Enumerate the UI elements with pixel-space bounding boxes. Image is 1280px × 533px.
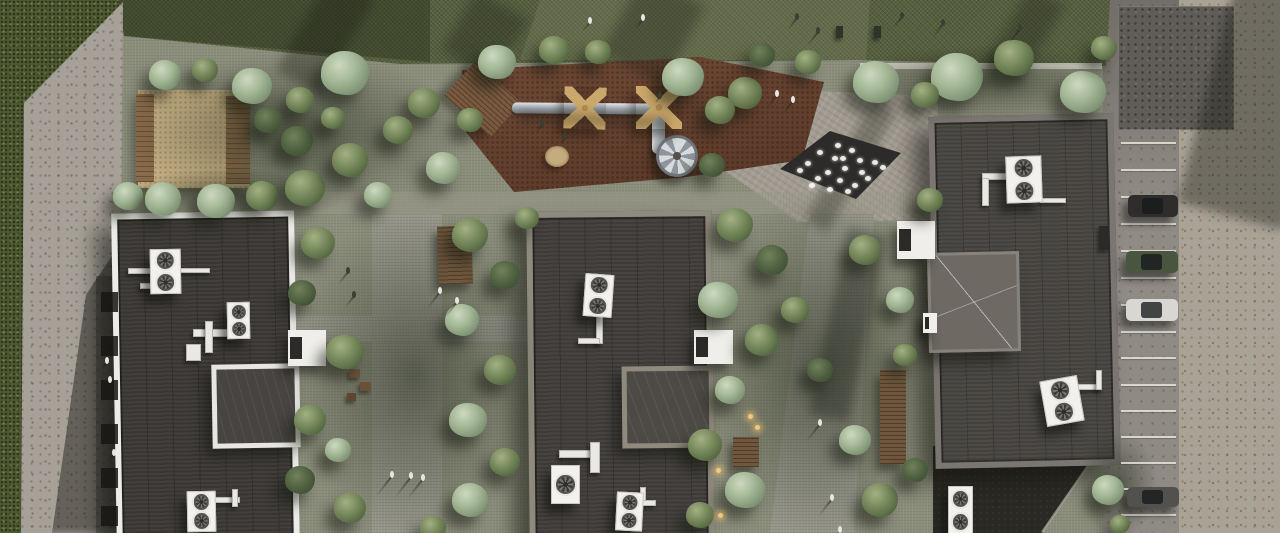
tree [1110, 515, 1130, 533]
tree [383, 116, 413, 144]
spiral-slide [656, 135, 698, 177]
person [112, 449, 116, 456]
tree [715, 376, 745, 404]
parking-stall-line [1121, 142, 1176, 144]
person [352, 291, 356, 298]
tree [585, 40, 611, 64]
hvac-unit [583, 273, 615, 318]
hvac-fan-icon [1048, 378, 1073, 403]
rooftop-pipe [186, 344, 201, 361]
person [775, 90, 779, 97]
tree [285, 466, 315, 494]
rooftop-pipe [1040, 198, 1066, 203]
garden-lamp-glow [716, 468, 721, 473]
tree [893, 344, 917, 366]
car-windows [1142, 490, 1164, 505]
tree [745, 324, 779, 355]
hvac-fan-icon [1051, 399, 1076, 424]
hvac-fan-icon [229, 320, 247, 338]
tree [862, 483, 898, 516]
parked-car [1126, 299, 1178, 321]
tree [853, 61, 899, 103]
tree [288, 280, 316, 306]
person [108, 376, 112, 383]
hvac-fan-icon [951, 512, 971, 532]
person [540, 120, 544, 127]
tree [145, 182, 181, 215]
tree [113, 182, 143, 210]
hvac-unit [615, 491, 644, 531]
person [641, 14, 645, 21]
hvac-fan-icon [1013, 179, 1036, 202]
hvac-unit [551, 465, 580, 504]
tree [1092, 475, 1124, 504]
person [838, 526, 842, 533]
fountain-jet [840, 156, 846, 161]
tree [917, 188, 943, 212]
person [791, 96, 795, 103]
parking-stall-line [1121, 410, 1176, 412]
fountain-jet [849, 148, 855, 153]
wood-deck [880, 370, 906, 464]
entrance-canopy-opening [925, 317, 929, 329]
parking-stall-line [1121, 462, 1176, 464]
fountain-jet [825, 170, 831, 175]
tree [902, 458, 928, 482]
entrance-canopy-opening [290, 337, 302, 359]
tree [281, 126, 313, 155]
tree [408, 88, 440, 117]
tree [1091, 36, 1117, 60]
hvac-fan-icon [587, 295, 609, 317]
tree [325, 438, 351, 462]
tree [452, 218, 488, 251]
tree [749, 43, 775, 67]
site-prop [874, 26, 881, 38]
tree [286, 87, 314, 113]
entrance-canopy-opening [696, 337, 708, 357]
tree [426, 152, 460, 183]
rooftop-pipe [178, 268, 210, 273]
tree [698, 282, 738, 319]
tree [484, 355, 516, 384]
fountain-jet [865, 176, 871, 181]
fountain-jet [832, 156, 838, 161]
person [658, 92, 662, 99]
tree [515, 207, 539, 229]
hvac-fan-icon [619, 511, 639, 531]
fountain-jet [827, 187, 833, 192]
tree [705, 96, 735, 124]
person [563, 133, 567, 140]
hvac-fan-icon [951, 489, 971, 509]
garden-lamp-glow [755, 425, 760, 430]
fountain-jet [880, 165, 886, 170]
parking-stall-line [1121, 384, 1176, 386]
tree [662, 58, 704, 97]
rooftop-pipe [578, 338, 600, 344]
tree [452, 483, 488, 516]
rooftop-pipe [982, 178, 989, 206]
tree [490, 261, 520, 289]
fountain-jet [872, 160, 878, 165]
tree [717, 208, 753, 241]
person [795, 13, 799, 20]
hvac-fan-icon [554, 473, 576, 495]
tree [294, 405, 326, 434]
garden-lamp-glow [748, 414, 753, 419]
car-windows [1141, 254, 1163, 270]
basement-window [101, 506, 118, 526]
wood-deck [733, 437, 759, 467]
hvac-fan-icon [588, 274, 610, 296]
tree [246, 181, 278, 210]
hvac-unit [150, 249, 182, 295]
person [438, 287, 442, 294]
tree [326, 335, 364, 370]
site-prop [836, 26, 843, 38]
hvac-fan-icon [620, 492, 640, 512]
fountain-jet [809, 183, 815, 188]
parked-car [1127, 487, 1179, 507]
hvac-fan-icon [229, 303, 247, 321]
person [830, 494, 834, 501]
tree [688, 429, 722, 460]
hvac-unit [1005, 155, 1043, 203]
tree [364, 182, 392, 208]
fountain-jet [845, 189, 851, 194]
person [409, 472, 413, 479]
fountain-jet [805, 161, 811, 166]
entrance-canopy [923, 313, 937, 333]
tree [478, 45, 516, 80]
person [900, 12, 904, 19]
tree [686, 502, 714, 528]
fountain-jet [859, 170, 865, 175]
site-prop [349, 369, 360, 378]
person [818, 419, 822, 426]
basement-window [101, 336, 118, 356]
hvac-unit [1039, 375, 1084, 427]
fountain-jet [797, 168, 803, 173]
fountain-jet [857, 158, 863, 163]
tree [254, 107, 282, 133]
tree [285, 170, 325, 207]
tree [449, 403, 487, 438]
aerial-courtyard-render [0, 0, 1280, 533]
parked-car [1126, 251, 1178, 273]
tree [849, 235, 881, 264]
fountain-jet [842, 166, 848, 171]
site-prop [360, 382, 371, 391]
rooftop-pipe [232, 489, 238, 507]
tree [490, 448, 520, 476]
person [421, 474, 425, 481]
person [588, 17, 592, 24]
rooftop-pipe [205, 321, 213, 353]
parking-stall-line [1121, 223, 1176, 225]
fountain-jet [835, 143, 841, 148]
basement-window [101, 468, 118, 488]
tree [539, 36, 569, 64]
tree [301, 227, 335, 258]
car-windows [1142, 198, 1163, 214]
tree [192, 58, 218, 82]
site-prop [1099, 226, 1109, 250]
hvac-unit [187, 491, 217, 532]
tree [911, 82, 939, 108]
tree [457, 108, 483, 132]
hvac-fan-icon [155, 271, 177, 293]
hvac-unit [227, 302, 251, 339]
tree [725, 472, 765, 509]
tree [334, 493, 366, 522]
tree [839, 425, 871, 454]
parking-stall-line [1121, 277, 1176, 279]
fountain-jet [815, 176, 821, 181]
site-prop [347, 393, 356, 401]
parked-car [1128, 195, 1178, 217]
person [941, 19, 945, 26]
tree [321, 107, 345, 129]
parking-stall-line [1121, 357, 1176, 359]
hvac-fan-icon [191, 492, 211, 512]
fountain-jet [817, 150, 823, 155]
garden-lamp-glow [718, 513, 723, 518]
basement-window [101, 424, 118, 444]
person [816, 27, 820, 34]
hvac-unit [948, 486, 973, 533]
hvac-fan-icon [192, 511, 212, 531]
hvac-fan-icon [1012, 157, 1035, 180]
entrance-canopy [694, 330, 733, 364]
basement-window [101, 292, 118, 312]
rooftop-pipe [590, 442, 600, 473]
person [1018, 24, 1022, 31]
person [105, 357, 109, 364]
rooftop-pipe [1096, 370, 1102, 390]
entrance-canopy-opening [899, 229, 911, 252]
person [390, 471, 394, 478]
sand-circle [545, 146, 569, 167]
parking-stall-line [1121, 169, 1176, 171]
tree [420, 516, 446, 533]
tree [994, 40, 1034, 77]
tree [232, 68, 272, 105]
person [455, 297, 459, 304]
tree [807, 358, 833, 382]
parking-stall-line [1121, 514, 1176, 516]
car-windows [1141, 302, 1163, 318]
tree [781, 297, 809, 323]
tree [149, 60, 181, 89]
entrance-canopy [897, 221, 935, 259]
tree [332, 143, 368, 176]
tree [699, 153, 725, 177]
tree [1060, 71, 1106, 113]
tree [756, 245, 788, 274]
entrance-canopy [288, 330, 326, 366]
tree [886, 287, 914, 313]
person [346, 267, 350, 274]
fountain-jet [837, 178, 843, 183]
hvac-fan-icon [155, 250, 177, 272]
tree [795, 50, 821, 74]
parking-stall-line [1121, 331, 1176, 333]
tree [197, 184, 235, 219]
tree [321, 51, 369, 95]
fountain-jet [852, 183, 858, 188]
parking-stall-line [1121, 436, 1176, 438]
